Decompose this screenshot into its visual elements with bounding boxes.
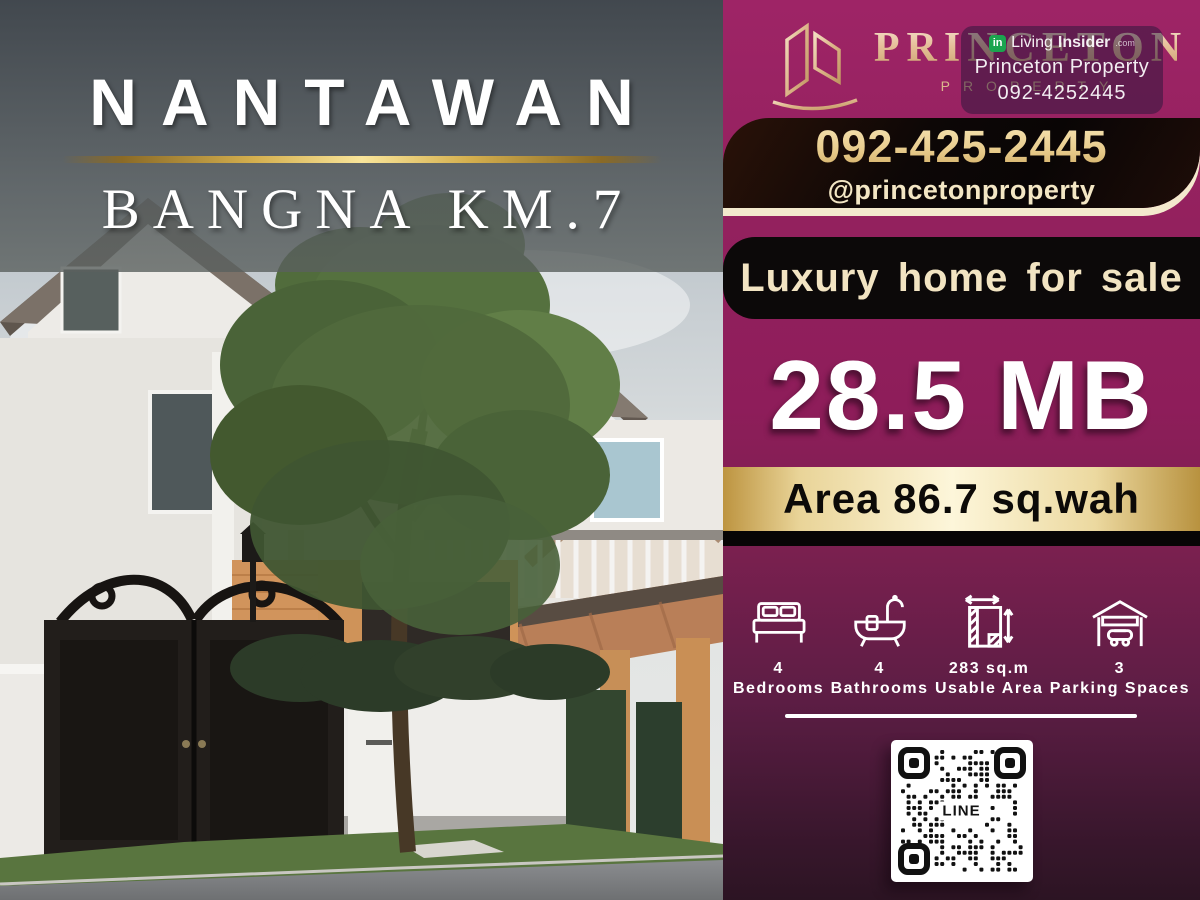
headline-box: Luxury home for sale [723, 237, 1200, 319]
living-insider-watermark: in Living Insider .com Princeton Propert… [961, 26, 1163, 114]
project-location: BANGNA KM.7 [13, 177, 723, 242]
floor-area-icon [958, 578, 1020, 650]
feature-label: Usable Area [935, 680, 1043, 698]
gold-divider [62, 156, 662, 163]
watermark-site-suffix: .com [1115, 38, 1135, 48]
listing-area: Area 86.7 sq.wah [783, 475, 1140, 523]
feature-value: 4 [874, 660, 884, 678]
social-handle: @princetonproperty [828, 175, 1096, 206]
living-insider-icon: in [989, 35, 1006, 52]
hero-title-block: NANTAWAN BANGNA KM.7 [0, 64, 723, 242]
qr-section: LINE [723, 740, 1200, 882]
info-panel: PRINCETON PROPERTY in Living Insider .co… [723, 0, 1200, 900]
watermark-phone: 092-4252445 [967, 82, 1157, 105]
feature-bedrooms: 4 Bedrooms [733, 560, 824, 698]
section-divider [785, 714, 1137, 718]
project-name: NANTAWAN [24, 64, 723, 140]
buildings-logo-icon [763, 10, 867, 119]
phone-number: 092-425-2445 [815, 121, 1107, 173]
feature-row: 4 Bedrooms 4 Bathrooms [723, 560, 1200, 698]
contact-box: 092-425-2445 @princetonproperty [723, 118, 1200, 208]
line-qr-code: LINE [891, 740, 1033, 882]
feature-parking: 3 Parking Spaces [1050, 560, 1190, 698]
feature-bathrooms: 4 Bathrooms [831, 560, 929, 698]
watermark-agency: Princeton Property [967, 56, 1157, 79]
watermark-site-light: Living [1011, 34, 1053, 52]
price-block: 28.5 MB [723, 330, 1200, 460]
listing-headline: Luxury home for sale [740, 256, 1183, 301]
bathtub-icon [850, 578, 910, 650]
watermark-site: in Living Insider .com [967, 34, 1157, 52]
feature-value: 4 [773, 660, 783, 678]
watermark-site-bold: Insider [1058, 34, 1110, 52]
feature-label: Bedrooms [733, 680, 824, 698]
bed-icon [749, 578, 809, 650]
qr-label: LINE [938, 802, 984, 821]
house-photo: NANTAWAN BANGNA KM.7 [0, 0, 723, 900]
feature-usable-area: 283 sq.m Usable Area [935, 560, 1043, 698]
feature-label: Parking Spaces [1050, 680, 1190, 698]
area-bar: Area 86.7 sq.wah [723, 467, 1200, 531]
property-poster: NANTAWAN BANGNA KM.7 [0, 0, 1200, 900]
area-bar-underline [723, 531, 1200, 546]
feature-label: Bathrooms [831, 680, 929, 698]
feature-value: 283 sq.m [949, 660, 1029, 678]
feature-value: 3 [1115, 660, 1125, 678]
garage-icon [1089, 578, 1151, 650]
listing-price: 28.5 MB [769, 339, 1153, 452]
